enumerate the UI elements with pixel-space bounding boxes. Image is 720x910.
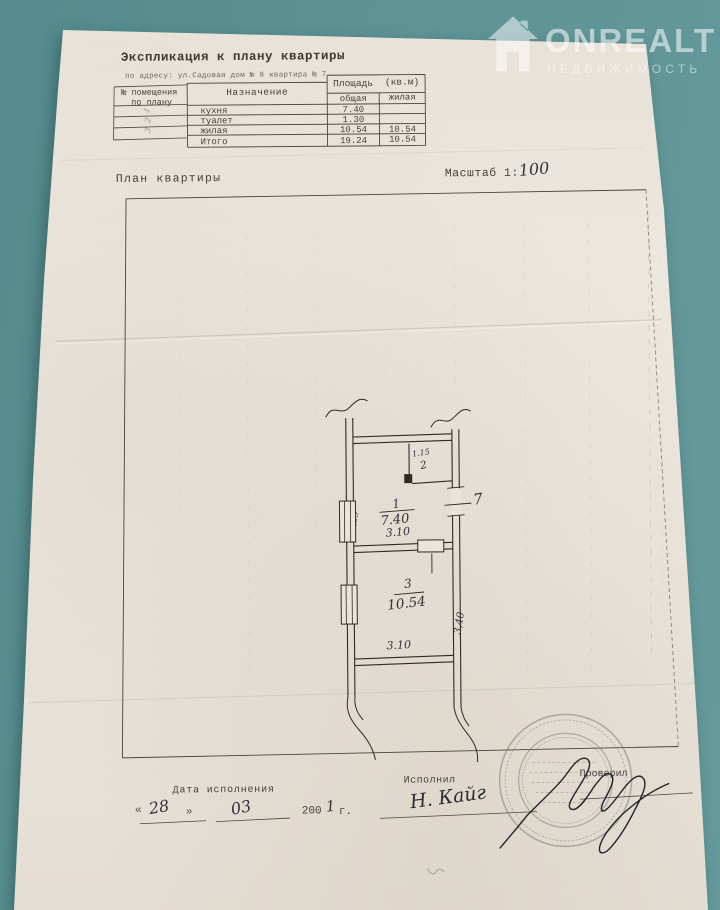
row2-purpose: туалет xyxy=(200,116,232,126)
row3-number: 3 xyxy=(143,126,153,134)
wall-mark-label: 7 xyxy=(472,489,484,508)
onrealt-logo-house-icon xyxy=(484,14,542,76)
paper-shadow: Экспликация к плану квартиры по адресу: … xyxy=(0,0,720,910)
right-depth-dimension: 3,40 xyxy=(452,611,467,635)
paper-creases xyxy=(24,147,702,702)
row3-purpose: жилая xyxy=(200,126,227,136)
executor-label: Исполнил xyxy=(404,775,456,786)
room2-area-label: 1.15 xyxy=(411,447,430,459)
date-label: Дата исполнения xyxy=(173,785,275,797)
row2-total: 1.30 xyxy=(327,115,379,125)
stray-pen-mark xyxy=(427,868,444,874)
document-title: Экспликация к плану квартиры xyxy=(121,49,345,65)
year-suffix: г. xyxy=(339,806,352,818)
table-area-units: (кв.м) xyxy=(379,76,425,87)
watermark: ONREALT НЕДВИЖИМОСТЬ xyxy=(484,12,720,86)
table-col-room-header-line1: № помещения xyxy=(121,87,177,97)
table-col-total-header: общая xyxy=(327,94,379,104)
quote-close: » xyxy=(186,806,193,818)
year-printed: 200 xyxy=(302,805,322,817)
table-col-living-header: жилая xyxy=(379,92,425,102)
year-digit-handwritten: 1 xyxy=(325,797,337,816)
table-area-header: Площадь xyxy=(327,78,379,89)
door-hinge-block xyxy=(404,474,412,483)
row1-total: 7.40 xyxy=(327,105,379,115)
total-row-label: Итого xyxy=(201,137,228,147)
room1-width-dimension: 3.10 xyxy=(385,525,410,540)
row3-living: 10.54 xyxy=(379,124,425,134)
table-col-room-header-line2: по плану xyxy=(131,97,172,107)
quote-open: « xyxy=(135,805,142,817)
table-col-purpose-header: Назначение xyxy=(192,86,322,98)
date-month-handwritten: 03 xyxy=(229,796,253,819)
scale-value-handwritten: 100 xyxy=(518,158,550,180)
watermark-brand: ONREALT xyxy=(545,22,716,60)
row2-number: 2 xyxy=(143,116,153,124)
left-depth-dimension: 2,39 xyxy=(348,510,362,532)
watermark-subtitle: НЕДВИЖИМОСТЬ xyxy=(547,62,701,76)
plan-title: План квартиры xyxy=(116,172,221,186)
room3-number-label: 3 xyxy=(403,576,412,591)
photo-of-document: Экспликация к плану квартиры по адресу: … xyxy=(0,0,720,910)
room2-number-label: 2 xyxy=(419,459,428,472)
room3-area-label: 10.54 xyxy=(386,594,426,614)
scale-label: Масштаб 1: xyxy=(445,167,519,181)
plan-frame xyxy=(118,190,678,758)
room3-width-dimension: 3.10 xyxy=(386,638,411,652)
total-row-total: 19.24 xyxy=(328,136,380,146)
document-content: Экспликация к плану квартиры по адресу: … xyxy=(0,0,720,910)
paper-sheet: Экспликация к плану квартиры по адресу: … xyxy=(0,0,720,910)
row1-purpose: кухня xyxy=(200,106,227,116)
total-row-living: 10.54 xyxy=(380,134,426,144)
address-line: по адресу: ул.Садовая дом № 8 квартира №… xyxy=(125,71,327,81)
apartment-walls xyxy=(326,398,478,763)
checker-label: Проверил xyxy=(580,769,628,780)
room1-number-label: 1 xyxy=(391,496,401,511)
row3-total: 10.54 xyxy=(327,125,379,135)
round-stamp xyxy=(499,714,632,847)
date-day-handwritten: 28 xyxy=(147,796,170,818)
